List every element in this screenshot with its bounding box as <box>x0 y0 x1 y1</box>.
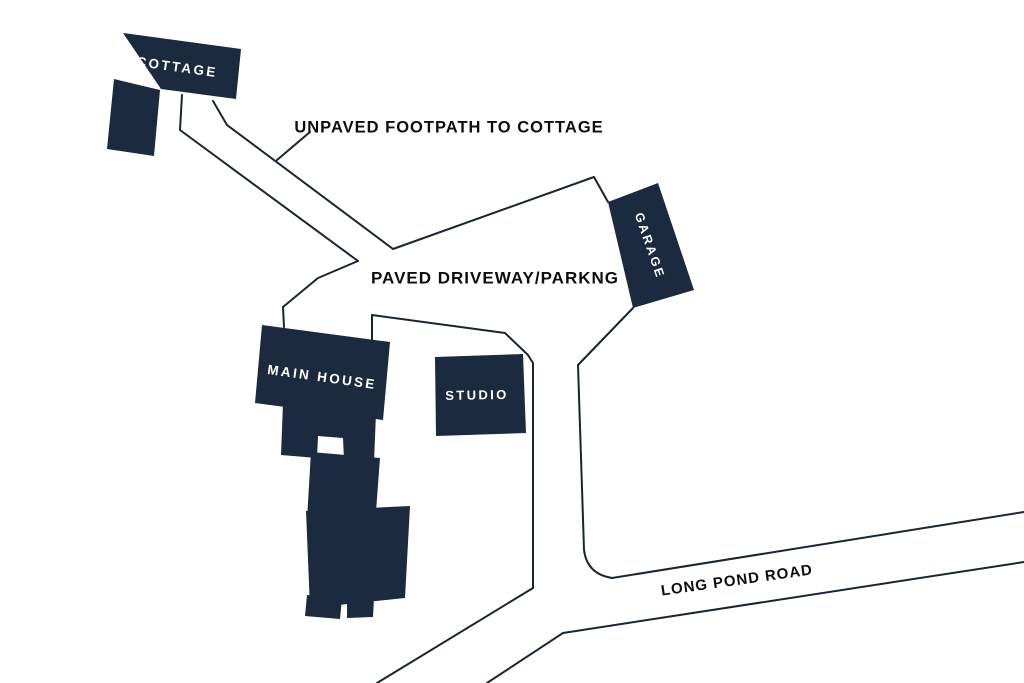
main-house-lower-wing <box>306 506 410 608</box>
driveway-top-boundary-line <box>393 177 608 249</box>
cottage-extension <box>107 79 160 156</box>
main-house-tab <box>347 598 374 618</box>
driveway-east-boundary-road-top-line <box>578 308 1024 578</box>
driveway-label: PAVED DRIVEWAY/PARKNG <box>371 268 619 287</box>
driveway-left-boundary-line <box>283 261 358 327</box>
site-plan-svg: COTTAGE GARAGE MAIN HOUSE STUDIO UNPAVED… <box>0 0 1024 683</box>
main-house-foot <box>305 595 342 619</box>
footpath-label: UNPAVED FOOTPATH TO COTTAGE <box>294 118 603 136</box>
studio-label: STUDIO <box>445 387 509 403</box>
main-house-connector <box>281 403 376 462</box>
site-plan-map: COTTAGE GARAGE MAIN HOUSE STUDIO UNPAVED… <box>0 0 1024 683</box>
